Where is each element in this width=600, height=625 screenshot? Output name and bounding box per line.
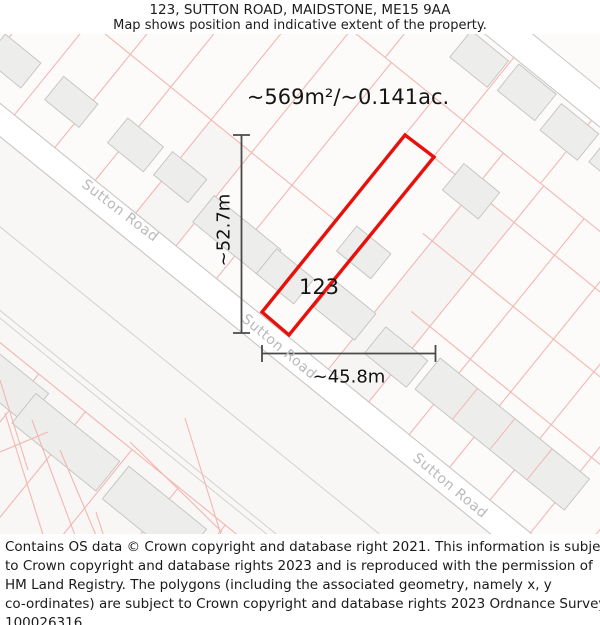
footer-line: Contains OS data © Crown copyright and d… [5,538,600,557]
footer-line: to Crown copyright and database rights 2… [5,557,600,576]
page-subtitle: Map shows position and indicative extent… [0,18,600,33]
width-dimension-label: ~45.8m [313,367,386,388]
footer-line: co-ordinates) are subject to Crown copyr… [5,595,600,614]
property-map-screenshot: 123, SUTTON ROAD, MAIDSTONE, ME15 9AA Ma… [0,0,600,625]
copyright-footer: Contains OS data © Crown copyright and d… [0,534,600,625]
footer-line: 100026316. [5,614,600,625]
plot-number-label: 123 [299,275,339,299]
header: 123, SUTTON ROAD, MAIDSTONE, ME15 9AA Ma… [0,0,600,34]
height-dimension-label: ~52.7m [214,194,235,267]
area-label: ~569m²/~0.141ac. [247,85,449,109]
page-title: 123, SUTTON ROAD, MAIDSTONE, ME15 9AA [0,0,600,18]
footer-line: HM Land Registry. The polygons (includin… [5,576,600,595]
